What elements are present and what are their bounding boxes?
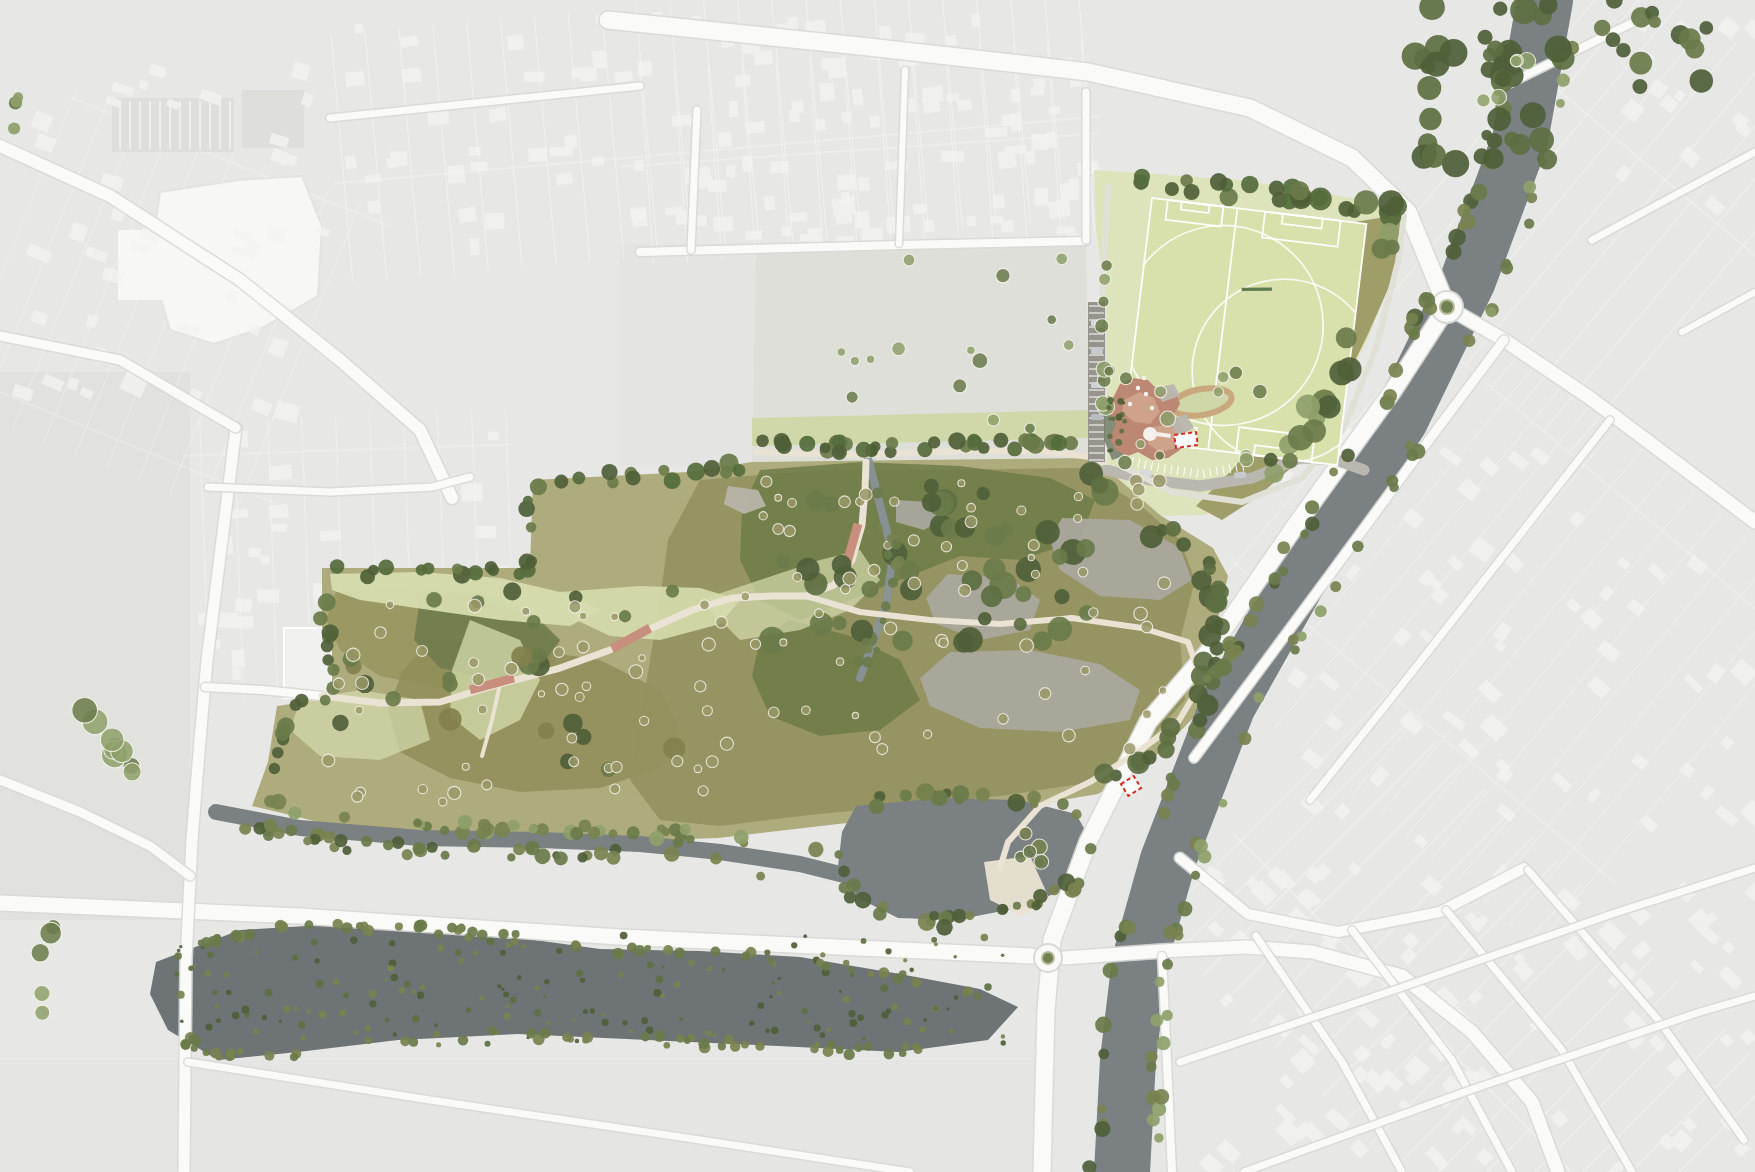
tree bbox=[466, 1007, 471, 1012]
tree bbox=[411, 990, 416, 995]
tree bbox=[771, 981, 775, 985]
tree bbox=[1154, 1133, 1163, 1142]
tree bbox=[1215, 659, 1232, 676]
tree bbox=[965, 911, 974, 920]
tree bbox=[530, 478, 547, 495]
tree bbox=[1094, 764, 1114, 784]
tree bbox=[318, 593, 336, 611]
tree bbox=[72, 697, 98, 723]
tree bbox=[721, 967, 725, 971]
tree bbox=[321, 640, 334, 653]
tree bbox=[442, 677, 457, 692]
tree bbox=[1238, 732, 1251, 745]
tree bbox=[902, 1043, 909, 1050]
tree bbox=[342, 846, 351, 855]
tree bbox=[479, 996, 484, 1001]
tree bbox=[1407, 449, 1419, 461]
tree bbox=[676, 1034, 684, 1042]
tree bbox=[1537, 149, 1557, 169]
tree bbox=[352, 791, 363, 802]
tree bbox=[1098, 296, 1109, 307]
tree bbox=[924, 479, 939, 494]
tree bbox=[1241, 176, 1259, 194]
tree bbox=[1378, 190, 1404, 216]
tree bbox=[836, 658, 844, 666]
play-equipment-icon bbox=[1128, 402, 1132, 406]
tree bbox=[322, 754, 335, 767]
tree bbox=[1057, 798, 1069, 810]
tree bbox=[1160, 411, 1176, 427]
tree bbox=[277, 717, 295, 735]
tree bbox=[620, 932, 628, 940]
tree bbox=[1487, 107, 1511, 131]
tree bbox=[885, 948, 891, 954]
tree bbox=[949, 1029, 954, 1034]
tree bbox=[761, 476, 772, 487]
tree bbox=[188, 965, 193, 970]
tree bbox=[1051, 435, 1067, 451]
proposed-pavilion bbox=[1174, 432, 1198, 448]
tree bbox=[1296, 394, 1320, 418]
tree bbox=[393, 1032, 397, 1036]
tree bbox=[1054, 589, 1069, 604]
tree bbox=[1155, 386, 1167, 398]
tree bbox=[1062, 729, 1075, 742]
tree bbox=[954, 795, 964, 805]
tree bbox=[1197, 695, 1218, 716]
tree bbox=[1594, 20, 1611, 37]
tree bbox=[1161, 788, 1174, 801]
tree bbox=[844, 1049, 855, 1060]
tree bbox=[663, 945, 673, 955]
tree bbox=[556, 683, 568, 695]
tree bbox=[1418, 292, 1435, 309]
tree bbox=[1014, 618, 1027, 631]
tree bbox=[1520, 102, 1546, 128]
tree bbox=[1095, 319, 1109, 333]
tree bbox=[1406, 313, 1418, 325]
tree bbox=[554, 475, 568, 489]
tree bbox=[1556, 99, 1565, 108]
tree bbox=[862, 657, 873, 668]
tree bbox=[276, 921, 288, 933]
tree bbox=[523, 496, 533, 506]
tree bbox=[577, 641, 589, 653]
tree bbox=[1142, 750, 1156, 764]
tree bbox=[883, 550, 892, 559]
tree bbox=[1329, 361, 1354, 386]
tree bbox=[320, 695, 331, 706]
tree bbox=[778, 977, 781, 980]
tree bbox=[272, 747, 284, 759]
tree bbox=[174, 972, 179, 977]
tree bbox=[998, 713, 1009, 724]
tree bbox=[866, 355, 874, 363]
tree bbox=[503, 582, 521, 600]
tree bbox=[777, 990, 782, 995]
tree bbox=[1329, 468, 1338, 477]
tree bbox=[504, 1013, 511, 1020]
tree bbox=[1091, 476, 1109, 494]
tree bbox=[529, 824, 538, 833]
tree bbox=[850, 356, 859, 365]
tree bbox=[1154, 977, 1164, 987]
tree bbox=[1524, 218, 1534, 228]
tree bbox=[884, 622, 897, 635]
tree bbox=[488, 564, 500, 576]
tree bbox=[923, 730, 931, 738]
tree bbox=[1557, 73, 1570, 86]
tree bbox=[850, 973, 855, 978]
tree bbox=[852, 712, 858, 718]
tree bbox=[244, 929, 255, 940]
tree bbox=[965, 516, 977, 528]
tree bbox=[448, 786, 461, 799]
tree bbox=[292, 955, 298, 961]
tree bbox=[706, 756, 718, 768]
tree bbox=[1071, 809, 1081, 819]
tree bbox=[1001, 954, 1004, 957]
tree bbox=[686, 835, 695, 844]
tree bbox=[384, 1017, 389, 1022]
tree bbox=[242, 1006, 250, 1014]
tree bbox=[353, 1030, 358, 1035]
tree bbox=[413, 818, 422, 827]
tree bbox=[1312, 190, 1328, 206]
tree bbox=[977, 487, 990, 500]
tree bbox=[314, 958, 319, 963]
tree bbox=[891, 539, 902, 550]
tree bbox=[741, 592, 750, 601]
tree bbox=[849, 1019, 857, 1027]
tree bbox=[498, 929, 509, 940]
tree bbox=[698, 786, 708, 796]
tree bbox=[957, 627, 982, 652]
tree bbox=[1420, 59, 1435, 74]
tree bbox=[1219, 799, 1228, 808]
tree bbox=[1067, 882, 1081, 896]
tree bbox=[710, 853, 722, 865]
tree bbox=[543, 995, 546, 998]
tree bbox=[404, 981, 411, 988]
tree bbox=[843, 960, 849, 966]
tree bbox=[417, 645, 428, 656]
tree bbox=[892, 630, 913, 651]
tree bbox=[1264, 453, 1278, 467]
tree bbox=[365, 1037, 372, 1044]
tree bbox=[505, 1004, 509, 1008]
tree bbox=[634, 945, 646, 957]
tree bbox=[1136, 439, 1145, 448]
tree bbox=[946, 1007, 949, 1010]
tree bbox=[1020, 639, 1034, 653]
tree bbox=[822, 962, 831, 971]
tree bbox=[1277, 541, 1290, 554]
tree bbox=[482, 780, 492, 790]
tree bbox=[478, 705, 487, 714]
tree bbox=[903, 958, 907, 962]
tree bbox=[588, 827, 601, 840]
tree bbox=[1106, 405, 1111, 410]
tree bbox=[179, 945, 182, 948]
tree bbox=[730, 1041, 740, 1051]
tree bbox=[909, 968, 914, 973]
tree bbox=[756, 434, 769, 447]
tree bbox=[458, 1035, 469, 1046]
tree bbox=[874, 647, 880, 653]
tree bbox=[1341, 449, 1355, 463]
tree bbox=[769, 995, 772, 998]
tree bbox=[386, 601, 394, 609]
tree bbox=[1330, 581, 1341, 592]
tree bbox=[1616, 43, 1631, 58]
tree bbox=[1157, 741, 1174, 758]
tree bbox=[1023, 845, 1037, 859]
tree bbox=[177, 949, 180, 952]
tree bbox=[413, 842, 426, 855]
tree bbox=[808, 842, 823, 857]
tree bbox=[904, 1018, 911, 1025]
tree bbox=[569, 601, 581, 613]
tree bbox=[525, 843, 535, 853]
tree bbox=[1076, 539, 1095, 558]
tree bbox=[216, 1018, 221, 1023]
tree bbox=[680, 824, 691, 835]
tree bbox=[920, 1026, 926, 1032]
tree bbox=[538, 723, 555, 740]
tree bbox=[1147, 1113, 1160, 1126]
tree bbox=[484, 1041, 490, 1047]
tree bbox=[815, 609, 824, 618]
tree bbox=[855, 892, 872, 909]
tree bbox=[1442, 150, 1469, 177]
tree bbox=[472, 843, 480, 851]
tree bbox=[684, 1037, 691, 1044]
tree bbox=[948, 432, 965, 449]
tree bbox=[664, 846, 680, 862]
tree bbox=[579, 612, 587, 620]
tree bbox=[1417, 76, 1441, 100]
tree bbox=[908, 577, 921, 590]
tree bbox=[175, 952, 182, 959]
tree bbox=[230, 930, 242, 942]
tree bbox=[572, 472, 585, 485]
tree bbox=[350, 937, 358, 945]
tree bbox=[402, 849, 413, 860]
tree bbox=[916, 783, 934, 801]
tree bbox=[180, 1019, 184, 1023]
tree bbox=[608, 829, 617, 838]
tree bbox=[1019, 827, 1032, 840]
tree bbox=[355, 706, 363, 714]
shopping-annex bbox=[118, 230, 166, 300]
tree bbox=[1081, 666, 1090, 675]
tree bbox=[868, 564, 880, 576]
tree bbox=[1491, 89, 1507, 105]
tree bbox=[834, 850, 842, 858]
tree bbox=[1098, 273, 1110, 285]
tree bbox=[346, 648, 360, 662]
tree bbox=[582, 682, 591, 691]
tree bbox=[851, 620, 873, 642]
tree bbox=[441, 851, 450, 860]
tree bbox=[846, 391, 858, 403]
tree bbox=[838, 866, 850, 878]
tree bbox=[507, 853, 515, 861]
tree bbox=[1028, 540, 1039, 551]
tree bbox=[436, 1042, 441, 1047]
tree bbox=[1156, 1036, 1170, 1050]
tree bbox=[1154, 1089, 1170, 1105]
tree bbox=[361, 836, 372, 847]
tree bbox=[1191, 871, 1200, 880]
tree bbox=[718, 1042, 726, 1050]
tree bbox=[399, 987, 405, 993]
tree bbox=[884, 1049, 895, 1060]
tree bbox=[391, 974, 398, 981]
tree bbox=[823, 1046, 834, 1057]
tree bbox=[527, 615, 541, 629]
tree bbox=[974, 992, 981, 999]
tree bbox=[264, 795, 277, 808]
tree bbox=[188, 1034, 199, 1045]
tree bbox=[1690, 69, 1713, 92]
tree bbox=[1268, 572, 1281, 585]
tree bbox=[1439, 39, 1467, 67]
tree bbox=[273, 827, 285, 839]
tree bbox=[764, 949, 770, 955]
tree bbox=[1184, 184, 1200, 200]
tree bbox=[972, 353, 988, 369]
tree bbox=[827, 1027, 832, 1032]
tree bbox=[239, 823, 251, 835]
tree bbox=[1474, 148, 1490, 164]
tree bbox=[1122, 401, 1125, 404]
tree bbox=[964, 986, 973, 995]
tree bbox=[1300, 530, 1309, 539]
play-equipment-icon bbox=[1142, 376, 1146, 380]
tree bbox=[1372, 239, 1392, 259]
tree bbox=[854, 1044, 862, 1052]
tree bbox=[750, 639, 760, 649]
tree bbox=[869, 799, 884, 814]
tree bbox=[1098, 1104, 1107, 1113]
tree bbox=[304, 920, 313, 929]
tree bbox=[517, 975, 522, 980]
tree bbox=[698, 1038, 709, 1049]
tree bbox=[870, 732, 881, 743]
tree bbox=[1422, 144, 1446, 168]
tree bbox=[505, 942, 511, 948]
tree bbox=[843, 572, 856, 585]
tree bbox=[720, 467, 732, 479]
tree bbox=[546, 1021, 550, 1025]
tree bbox=[1161, 718, 1180, 737]
tree bbox=[469, 658, 479, 668]
tree bbox=[674, 948, 685, 959]
tree bbox=[1501, 259, 1511, 269]
tree bbox=[886, 437, 898, 449]
tree bbox=[487, 938, 495, 946]
tree bbox=[1282, 453, 1298, 469]
tree bbox=[11, 96, 23, 108]
tree bbox=[458, 815, 473, 830]
tree bbox=[488, 1026, 497, 1035]
tree bbox=[880, 617, 887, 624]
tree bbox=[802, 1008, 808, 1014]
tree bbox=[339, 812, 350, 823]
tree bbox=[741, 1041, 749, 1049]
tree bbox=[820, 952, 825, 957]
tree bbox=[908, 535, 919, 546]
tree bbox=[356, 676, 369, 689]
tree bbox=[1203, 563, 1216, 576]
tree bbox=[388, 965, 395, 972]
carousel-icon bbox=[1143, 427, 1157, 441]
tree bbox=[877, 525, 883, 531]
tree bbox=[870, 441, 880, 451]
tree bbox=[339, 1009, 346, 1016]
tree bbox=[791, 942, 797, 948]
tree bbox=[468, 599, 481, 612]
tree bbox=[556, 948, 562, 954]
tree bbox=[836, 1046, 844, 1054]
tree bbox=[1446, 244, 1462, 260]
tree bbox=[658, 465, 669, 476]
tree bbox=[1448, 228, 1466, 246]
tree bbox=[1470, 184, 1487, 201]
tree bbox=[575, 692, 584, 701]
tree bbox=[640, 716, 649, 725]
tree bbox=[873, 907, 887, 921]
tree bbox=[332, 919, 342, 929]
tree bbox=[1150, 1013, 1163, 1026]
tree bbox=[582, 1037, 589, 1044]
roundabout-south-tree bbox=[1043, 953, 1053, 963]
tree bbox=[1194, 839, 1208, 853]
tree bbox=[211, 937, 221, 947]
tree bbox=[923, 1018, 927, 1022]
tree bbox=[1523, 181, 1536, 194]
tree bbox=[1545, 35, 1572, 62]
tree bbox=[1116, 415, 1122, 421]
tree bbox=[1408, 329, 1420, 341]
tree bbox=[672, 756, 683, 767]
tree bbox=[978, 612, 992, 626]
tree bbox=[389, 940, 395, 946]
tree bbox=[1388, 363, 1403, 378]
tree bbox=[857, 1015, 863, 1021]
tree bbox=[1098, 1048, 1109, 1059]
tree bbox=[803, 934, 807, 938]
tree bbox=[619, 610, 631, 622]
tree bbox=[810, 1045, 819, 1054]
tree bbox=[452, 563, 463, 574]
tree bbox=[1495, 71, 1512, 88]
tree bbox=[954, 995, 959, 1000]
tree bbox=[1163, 925, 1177, 939]
tree bbox=[414, 922, 424, 932]
tree bbox=[953, 379, 967, 393]
tree bbox=[1419, 108, 1441, 130]
tree bbox=[1052, 549, 1068, 565]
tree bbox=[1122, 921, 1136, 935]
tree bbox=[656, 975, 664, 983]
tree bbox=[433, 1031, 440, 1038]
tree bbox=[984, 983, 992, 991]
tree bbox=[1034, 854, 1049, 869]
tree bbox=[1134, 607, 1148, 621]
